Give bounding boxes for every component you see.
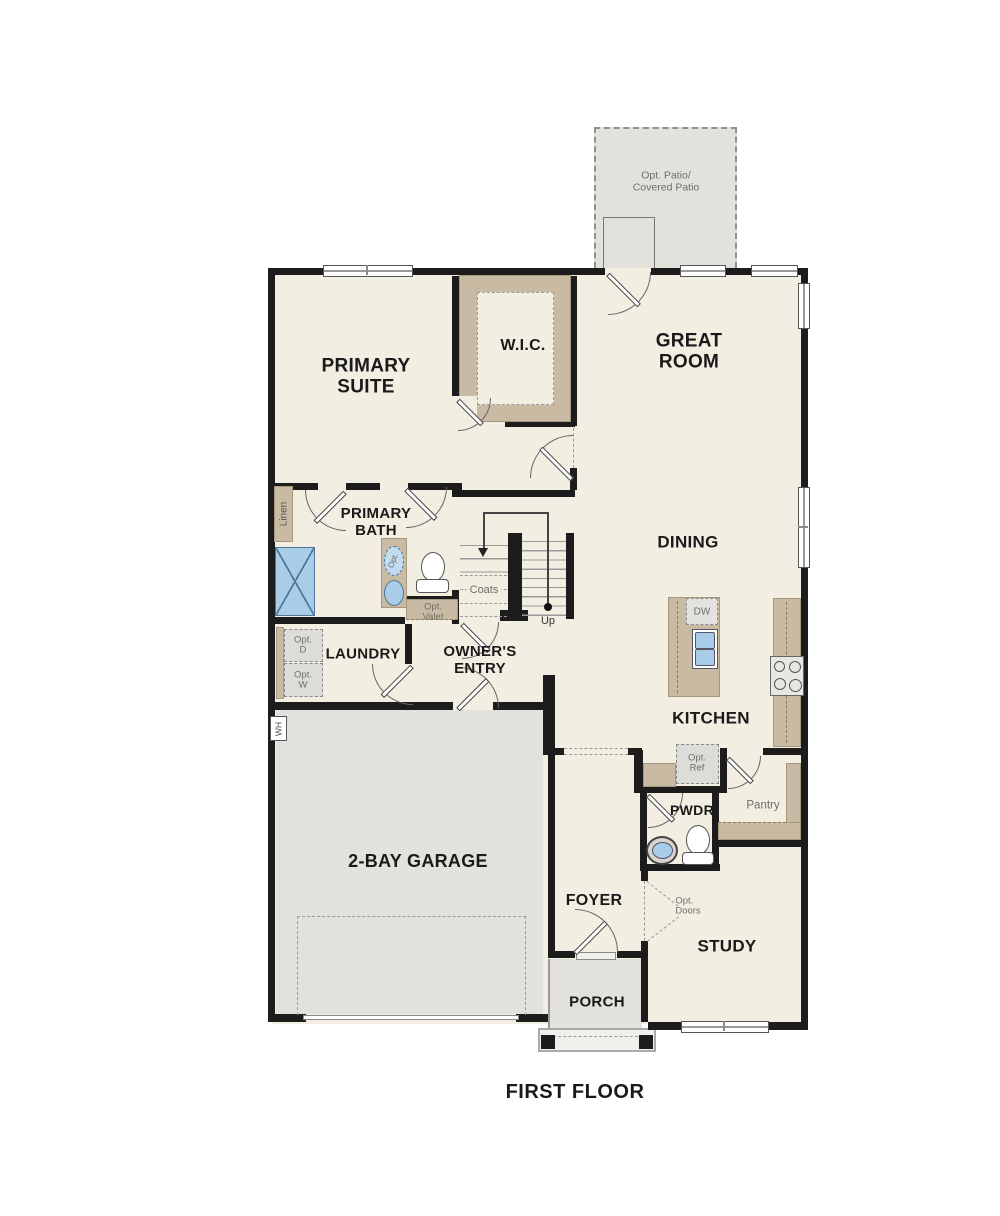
wall — [640, 786, 720, 793]
sink-basin — [695, 632, 715, 649]
room-label-foyer: FOYER — [566, 892, 623, 910]
stair-dashed-tread — [460, 575, 507, 576]
wall — [570, 276, 577, 426]
pwdr-toilet-base — [682, 852, 714, 865]
porch-post — [639, 1035, 653, 1049]
room-label-garage: 2-BAY GARAGE — [348, 851, 488, 871]
room-label-wic: W.I.C. — [500, 337, 545, 355]
sink-basin — [695, 649, 715, 666]
pwdr-sink-basin — [652, 842, 673, 859]
bath-toilet-base — [416, 579, 449, 593]
burner — [774, 678, 786, 690]
wall — [452, 276, 459, 396]
stair-run-line — [483, 512, 548, 514]
porch-post — [541, 1035, 555, 1049]
window — [681, 1021, 769, 1033]
stair-run-arrow — [478, 548, 488, 557]
window-mullion — [366, 265, 368, 275]
shower — [275, 547, 315, 616]
opt-w-label: Opt. W — [294, 671, 312, 692]
opt-doors-label: Opt. Doors — [675, 897, 700, 918]
pwdr-sink — [646, 836, 678, 865]
front-door-landing — [576, 952, 616, 960]
window — [798, 283, 810, 329]
room-label-pwdr: PWDR — [670, 803, 714, 819]
stair-start-dot — [544, 603, 552, 611]
burner — [789, 661, 801, 673]
opt-doors-dashed — [644, 881, 645, 941]
room-label-study: STUDY — [697, 936, 756, 955]
wall — [548, 755, 555, 955]
room-label-primary-suite: PRIMARY SUITE — [321, 356, 410, 399]
island-dashed — [677, 601, 678, 693]
up-label: Up — [541, 615, 555, 627]
stair-run-line — [547, 512, 549, 607]
wall — [268, 1014, 306, 1022]
wall — [272, 617, 405, 624]
stair-dashed-tread — [460, 616, 507, 617]
window — [680, 265, 726, 277]
window-mullion — [798, 526, 808, 528]
wall — [452, 490, 575, 497]
wall — [516, 1014, 548, 1022]
wall — [640, 864, 720, 871]
wall — [641, 871, 648, 881]
garage-door — [303, 1015, 519, 1020]
stair-dashed-tread — [460, 603, 507, 604]
opt-d-label: Opt. D — [294, 636, 312, 657]
stair-wall — [566, 533, 574, 619]
opening-dashed — [573, 428, 574, 468]
room-label-dining: DINING — [657, 532, 718, 551]
fridge-counter — [643, 763, 676, 787]
cooktop — [770, 656, 804, 696]
pwdr-toilet-bowl — [686, 825, 710, 855]
wall — [720, 748, 727, 793]
wall — [640, 786, 647, 871]
room-label-great-room: GREAT ROOM — [656, 331, 723, 374]
pantry-shelf — [718, 822, 801, 840]
wall — [543, 675, 555, 755]
room-label-laundry: LAUNDRY — [326, 647, 401, 664]
wall — [548, 748, 564, 755]
wall — [763, 748, 801, 755]
garage-bay-dashed — [297, 916, 526, 1015]
room-label-pantry: Pantry — [746, 800, 779, 813]
opening-dashed — [564, 748, 628, 749]
porch-edge-dashed — [553, 1036, 643, 1037]
room-label-owners-entry: OWNER'S ENTRY — [443, 644, 516, 678]
window — [751, 265, 798, 277]
wall — [641, 941, 648, 953]
stair-run-line — [483, 512, 485, 548]
room-label-primary-bath: PRIMARY BATH — [341, 506, 412, 540]
opt-ref-label: Opt. Ref — [688, 754, 706, 775]
kitchen-sink — [692, 629, 718, 669]
bath-sink — [384, 580, 404, 606]
coats-label: Coats — [467, 584, 502, 596]
opening-dashed — [564, 754, 628, 755]
window — [323, 265, 413, 277]
pantry-shelf — [786, 763, 801, 823]
opt-valet-label: Opt. Valet — [423, 603, 444, 624]
burner — [774, 661, 785, 672]
patio-door-landing — [603, 217, 655, 268]
wall — [801, 268, 808, 1030]
wall — [405, 624, 412, 664]
wall — [641, 951, 648, 1022]
wh-label: WH — [274, 722, 283, 736]
wall — [268, 268, 275, 1022]
linen-label: Linen — [279, 502, 290, 526]
room-label-kitchen: KITCHEN — [672, 708, 750, 727]
room-label-porch: PORCH — [569, 995, 625, 1012]
burner — [789, 679, 802, 692]
window-mullion — [723, 1021, 725, 1031]
first-floor-title: FIRST FLOOR — [506, 1081, 645, 1103]
bath-toilet-bowl — [421, 552, 445, 582]
wall — [268, 702, 453, 710]
wall — [346, 483, 380, 490]
laundry-counter — [276, 627, 284, 699]
wall — [716, 840, 801, 847]
patio-label: Opt. Patio/ Covered Patio — [633, 170, 700, 193]
floor-plan: Opt. Patio/ Covered Patio — [0, 0, 1000, 1216]
stair-wall — [508, 533, 522, 619]
dw-label: DW — [694, 607, 711, 618]
